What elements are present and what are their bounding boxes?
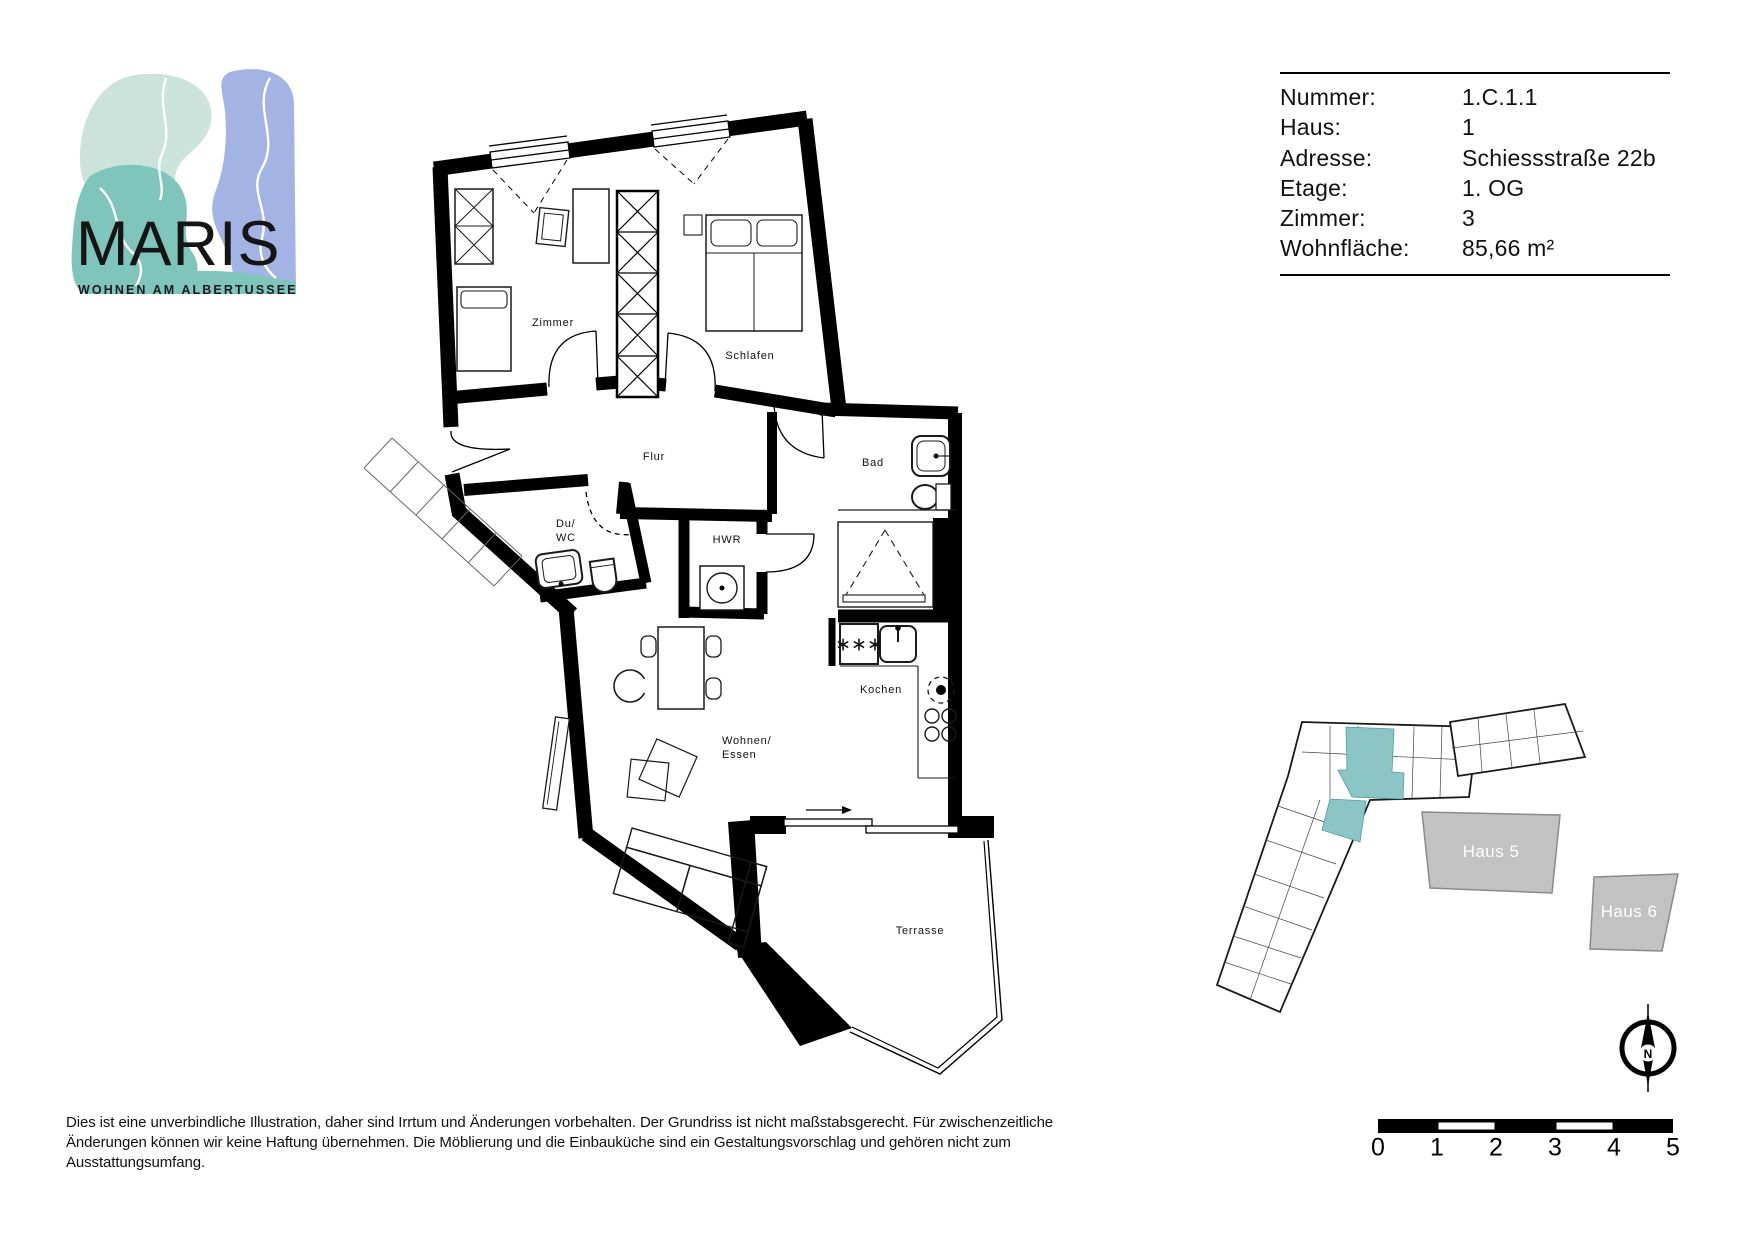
room-label-schlafen: Schlafen [725, 349, 774, 363]
scale-tick-4: 4 [1607, 1134, 1621, 1163]
scale-tick-0: 0 [1371, 1134, 1385, 1163]
site-building-2 [1450, 704, 1585, 776]
scale-bar [1378, 1119, 1673, 1133]
site-label-haus5: Haus 5 [1463, 842, 1520, 862]
hwr-washer [700, 566, 744, 610]
room-label-hwr: HWR [713, 533, 742, 547]
room-label-flur: Flur [643, 450, 665, 464]
freezer-symbol: ∗∗∗ [835, 634, 883, 657]
zimmer-furniture [455, 189, 609, 371]
plan-drawing [0, 0, 1754, 1240]
scale-tick-5: 5 [1666, 1134, 1680, 1163]
zimmer-door [549, 331, 598, 387]
floorplan-sheet: MARIS WOHNEN AM ALBERTUSSEE Nummer: 1.C.… [0, 0, 1754, 1240]
schlafen-door [665, 333, 715, 391]
disclaimer-text: Dies ist eine unverbindliche Illustratio… [66, 1113, 1141, 1173]
room-label-zimmer: Zimmer [532, 316, 574, 330]
scale-tick-2: 2 [1489, 1134, 1503, 1163]
wardrobe-shaft [617, 191, 658, 397]
site-plan [1217, 704, 1678, 1012]
compass-north-label: N [1644, 1047, 1653, 1061]
hwr-door [766, 534, 814, 572]
room-label-wohnen-essen: Wohnen/ Essen [722, 734, 771, 762]
room-label-kochen: Kochen [860, 683, 902, 697]
site-label-haus6: Haus 6 [1601, 902, 1658, 922]
entry-door [451, 431, 510, 472]
room-label-duwc: Du/ WC [556, 517, 576, 545]
schlafen-furniture [684, 215, 802, 331]
window-zimmer [489, 136, 570, 213]
scale-tick-1: 1 [1430, 1134, 1444, 1163]
stairwell-outside [364, 438, 522, 586]
dining-set [614, 627, 721, 709]
scale-tick-3: 3 [1548, 1134, 1562, 1163]
room-label-terrasse: Terrasse [896, 924, 945, 938]
window-schlafen [651, 115, 730, 184]
room-label-bad: Bad [862, 456, 884, 470]
